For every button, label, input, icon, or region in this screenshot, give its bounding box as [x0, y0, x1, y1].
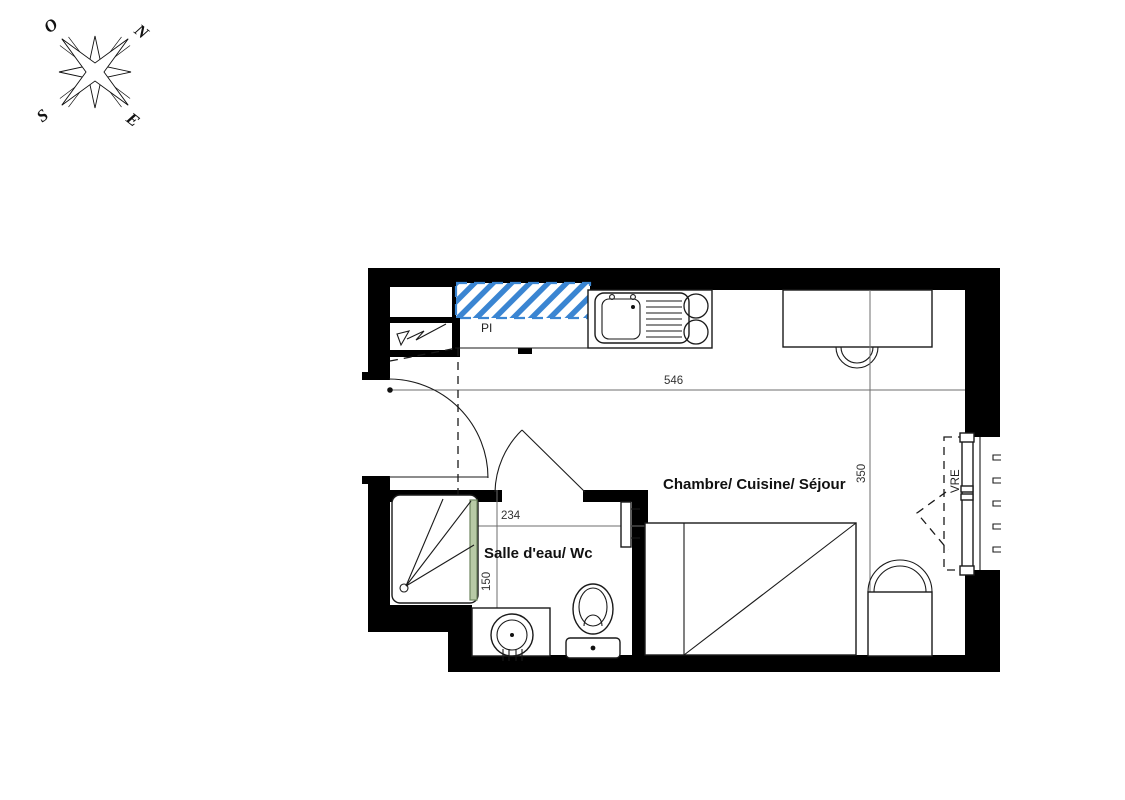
- bathroom-door-leaf: [522, 430, 585, 492]
- closet-pi-label: PI: [481, 321, 492, 335]
- toilet-tank-button: [591, 646, 596, 651]
- radiator: [621, 502, 631, 547]
- wall-southwest-return: [448, 605, 472, 672]
- dim-label-234: 234: [501, 510, 520, 522]
- wall-west-lower: [368, 478, 390, 608]
- floor-plan-drawing: [0, 0, 1125, 800]
- bed-outline: [645, 523, 856, 655]
- floor-plan-page: O N S E PI Chambre/ Cuisine/ Séjour Sall…: [0, 0, 1125, 800]
- dim-label-350: 350: [856, 464, 868, 483]
- window-jamb-bottom: [960, 566, 974, 575]
- counter-edge-tick: [518, 348, 532, 354]
- sink-drain-dot: [631, 305, 635, 309]
- desk-chair-inner: [874, 566, 926, 592]
- dim-label-150: 150: [481, 572, 493, 591]
- dim-label-546: 546: [664, 375, 683, 387]
- main-room-label: Chambre/ Cuisine/ Séjour: [663, 476, 846, 493]
- shower-glass-panel: [470, 500, 477, 600]
- door-jamb-top: [362, 372, 390, 380]
- dim-line-dot: [387, 387, 393, 393]
- wall-east-upper: [965, 268, 1000, 437]
- bed: [645, 523, 856, 655]
- entry-closet-lower-box: [390, 323, 452, 350]
- balcony-railing-marks: [993, 455, 1001, 552]
- washbasin-drain: [510, 633, 514, 637]
- desk-top: [868, 592, 932, 656]
- desk: [868, 560, 932, 656]
- window-frame: [962, 437, 973, 570]
- window-vre-label: VRE: [950, 469, 962, 493]
- bathroom-door: [495, 430, 585, 492]
- shower-tray: [392, 495, 478, 603]
- compass-rose: [59, 36, 131, 108]
- kitchen: [455, 283, 712, 348]
- desk-chair-outer: [868, 560, 932, 592]
- window-jamb-top: [960, 433, 974, 442]
- window-handle: [961, 494, 973, 500]
- entrance-door-swing-arc: [389, 379, 488, 478]
- bathroom-door-swing-arc: [495, 430, 522, 492]
- bathroom-label: Salle d'eau/ Wc: [484, 545, 593, 562]
- entrance-door: [389, 348, 488, 497]
- wall-south: [455, 655, 1000, 672]
- chair-back-inner: [841, 347, 873, 363]
- closet-hatched-area: [456, 283, 590, 318]
- dining-table: [783, 290, 932, 368]
- entry-closet-upper-box: [390, 287, 452, 317]
- window-handle: [961, 486, 973, 492]
- wall-southwest-step: [368, 605, 460, 632]
- window-vre: [917, 433, 1001, 575]
- chair-back-outer: [836, 347, 878, 368]
- table-top: [783, 290, 932, 347]
